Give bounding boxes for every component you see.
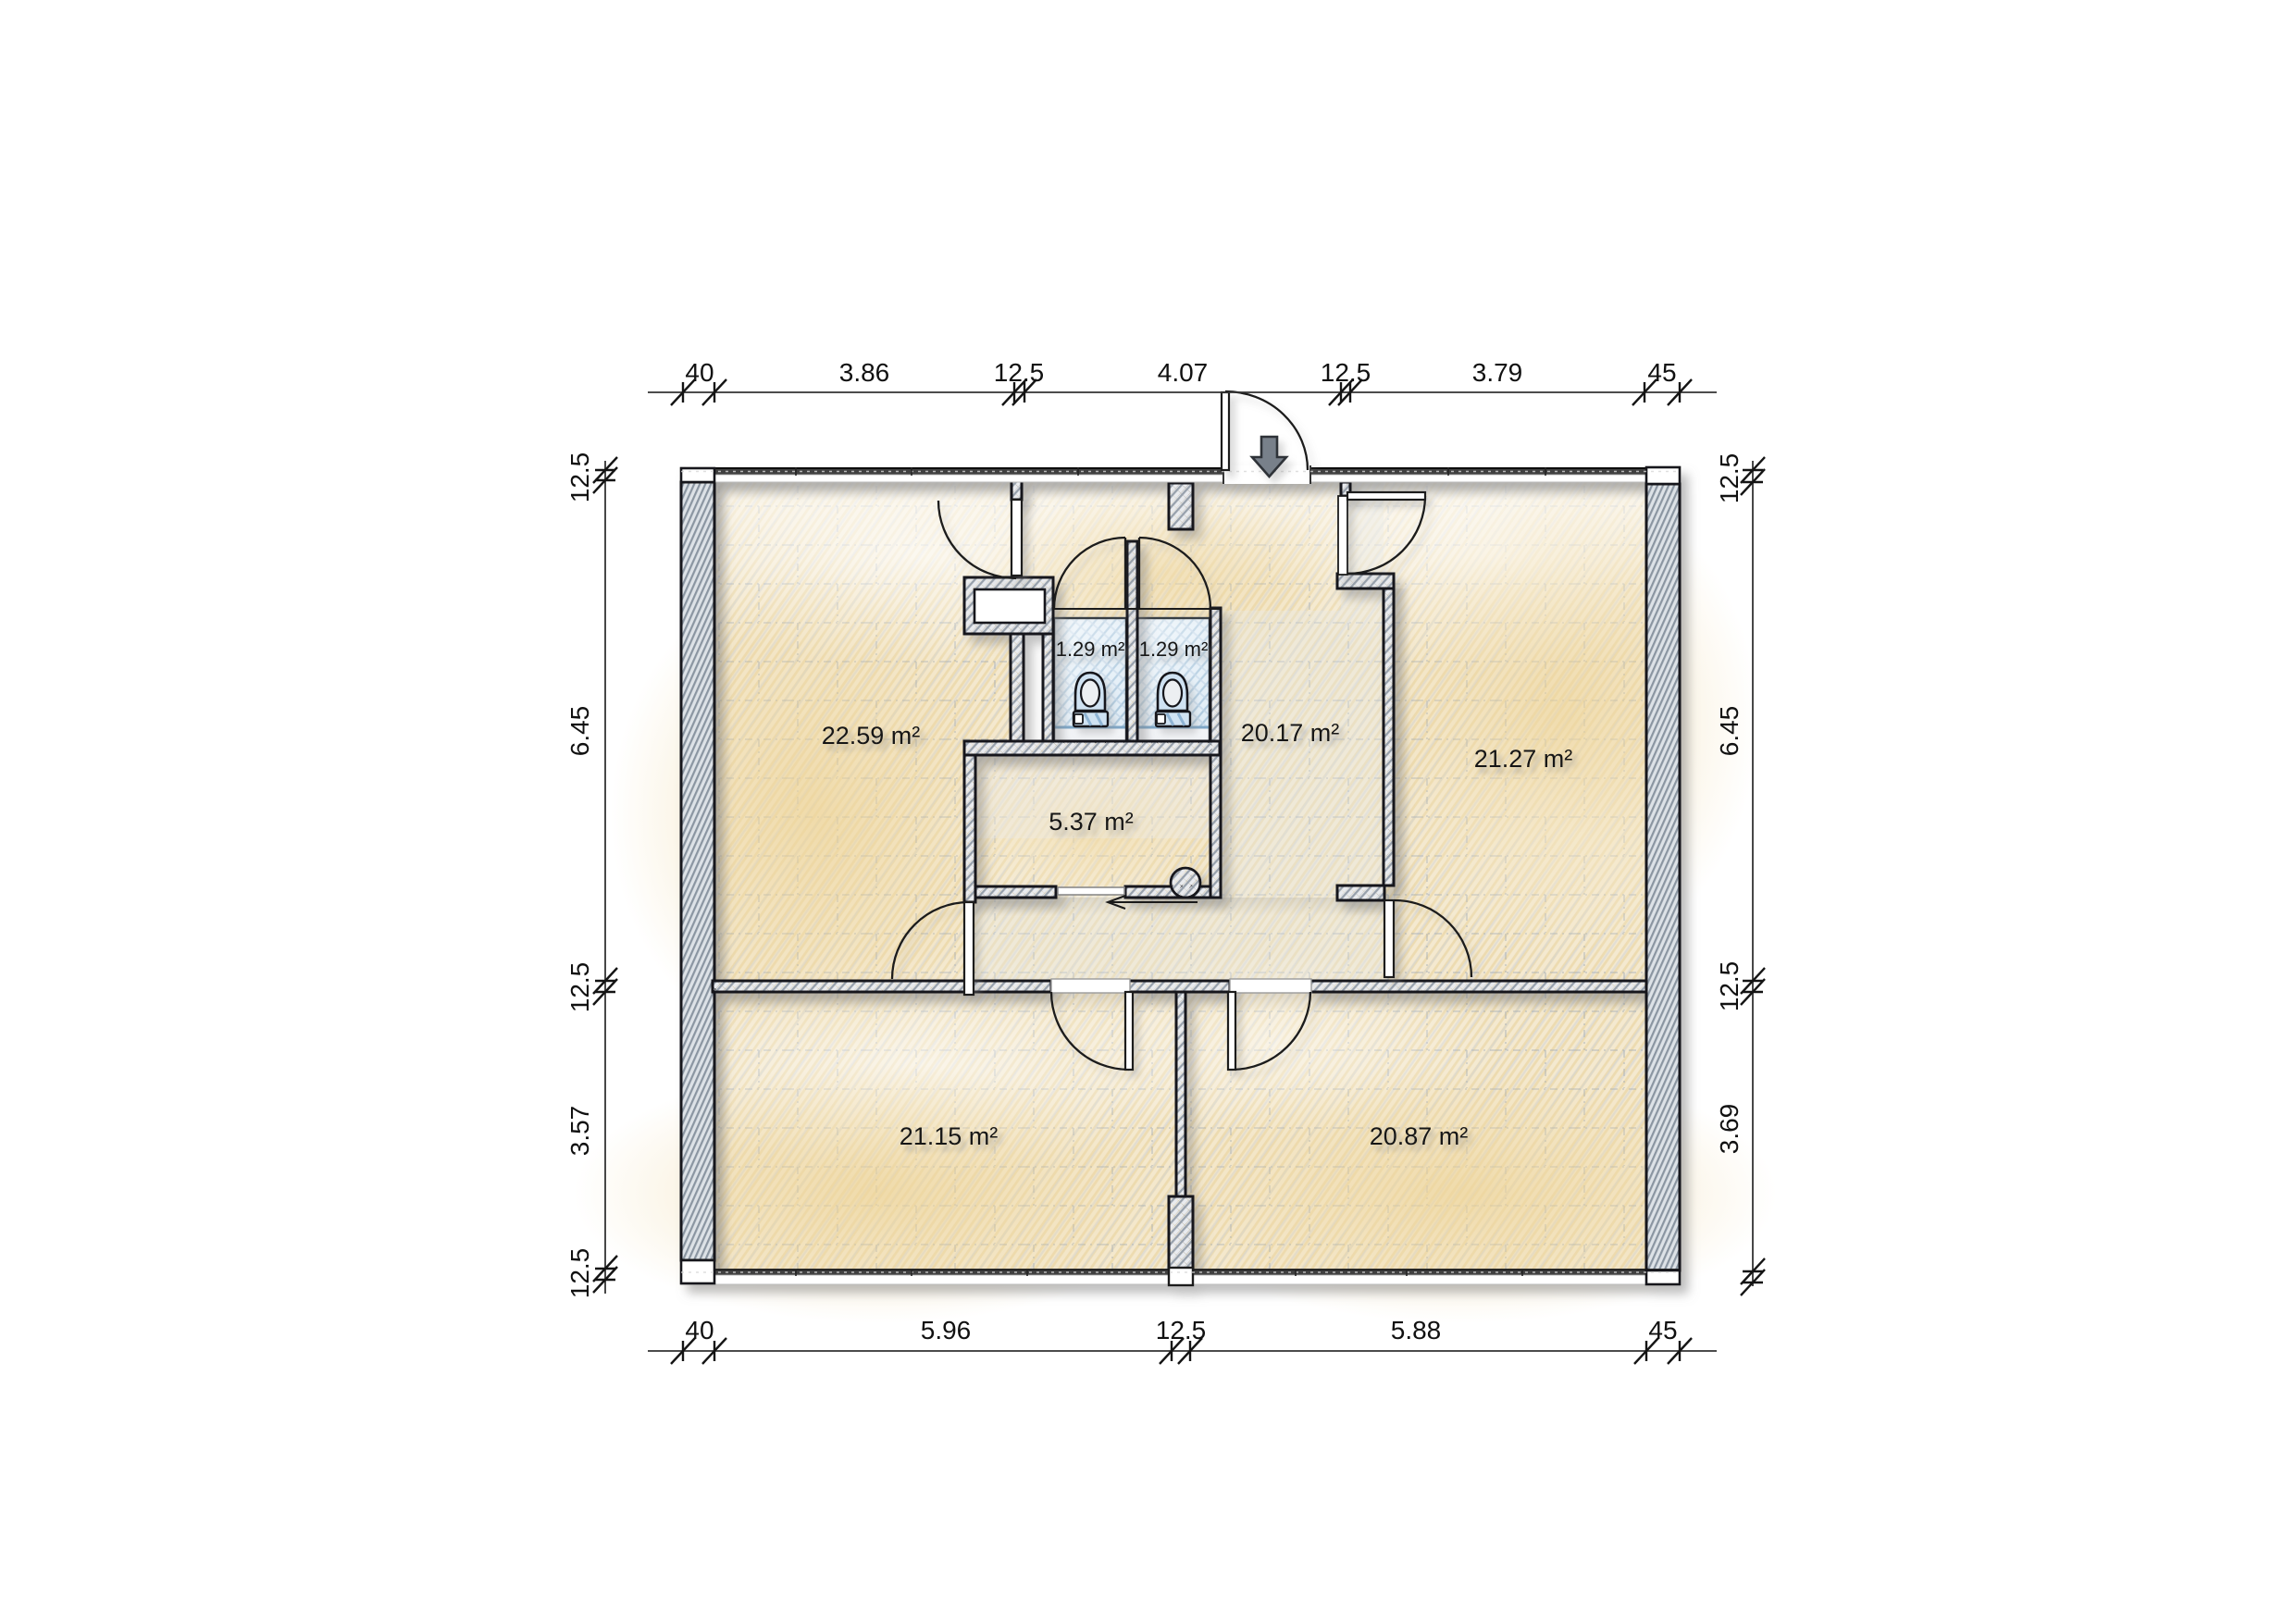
svg-text:4.07: 4.07	[1158, 358, 1209, 387]
svg-text:12.5: 12.5	[1321, 358, 1371, 387]
svg-text:3.69: 3.69	[1715, 1104, 1744, 1155]
svg-text:20.87 m²: 20.87 m²	[1370, 1122, 1469, 1150]
svg-text:3.86: 3.86	[839, 358, 890, 387]
svg-text:5.96: 5.96	[921, 1316, 972, 1344]
svg-text:3.79: 3.79	[1472, 358, 1523, 387]
svg-text:3.57: 3.57	[565, 1106, 594, 1157]
svg-text:40: 40	[685, 358, 714, 387]
svg-text:21.27 m²: 21.27 m²	[1474, 745, 1573, 773]
svg-text:20.17 m²: 20.17 m²	[1241, 719, 1340, 747]
svg-text:12.5: 12.5	[565, 452, 594, 503]
svg-text:5.37 m²: 5.37 m²	[1049, 808, 1134, 836]
svg-text:22.59 m²: 22.59 m²	[822, 722, 921, 750]
svg-text:12.5: 12.5	[994, 358, 1045, 387]
svg-text:12.5: 12.5	[565, 962, 594, 1013]
svg-text:45: 45	[1647, 358, 1676, 387]
svg-text:6.45: 6.45	[1715, 706, 1744, 757]
svg-text:45: 45	[1648, 1316, 1677, 1344]
svg-text:12.5: 12.5	[1156, 1316, 1207, 1344]
svg-text:6.45: 6.45	[565, 706, 594, 757]
svg-text:12.5: 12.5	[1715, 453, 1744, 504]
svg-text:5.88: 5.88	[1391, 1316, 1442, 1344]
svg-text:12.5: 12.5	[565, 1248, 594, 1299]
svg-text:21.15 m²: 21.15 m²	[900, 1122, 999, 1150]
svg-text:1.29 m²: 1.29 m²	[1056, 638, 1125, 661]
svg-text:1.29 m²: 1.29 m²	[1139, 638, 1209, 661]
svg-text:40: 40	[685, 1316, 714, 1344]
svg-text:12.5: 12.5	[1715, 961, 1744, 1012]
